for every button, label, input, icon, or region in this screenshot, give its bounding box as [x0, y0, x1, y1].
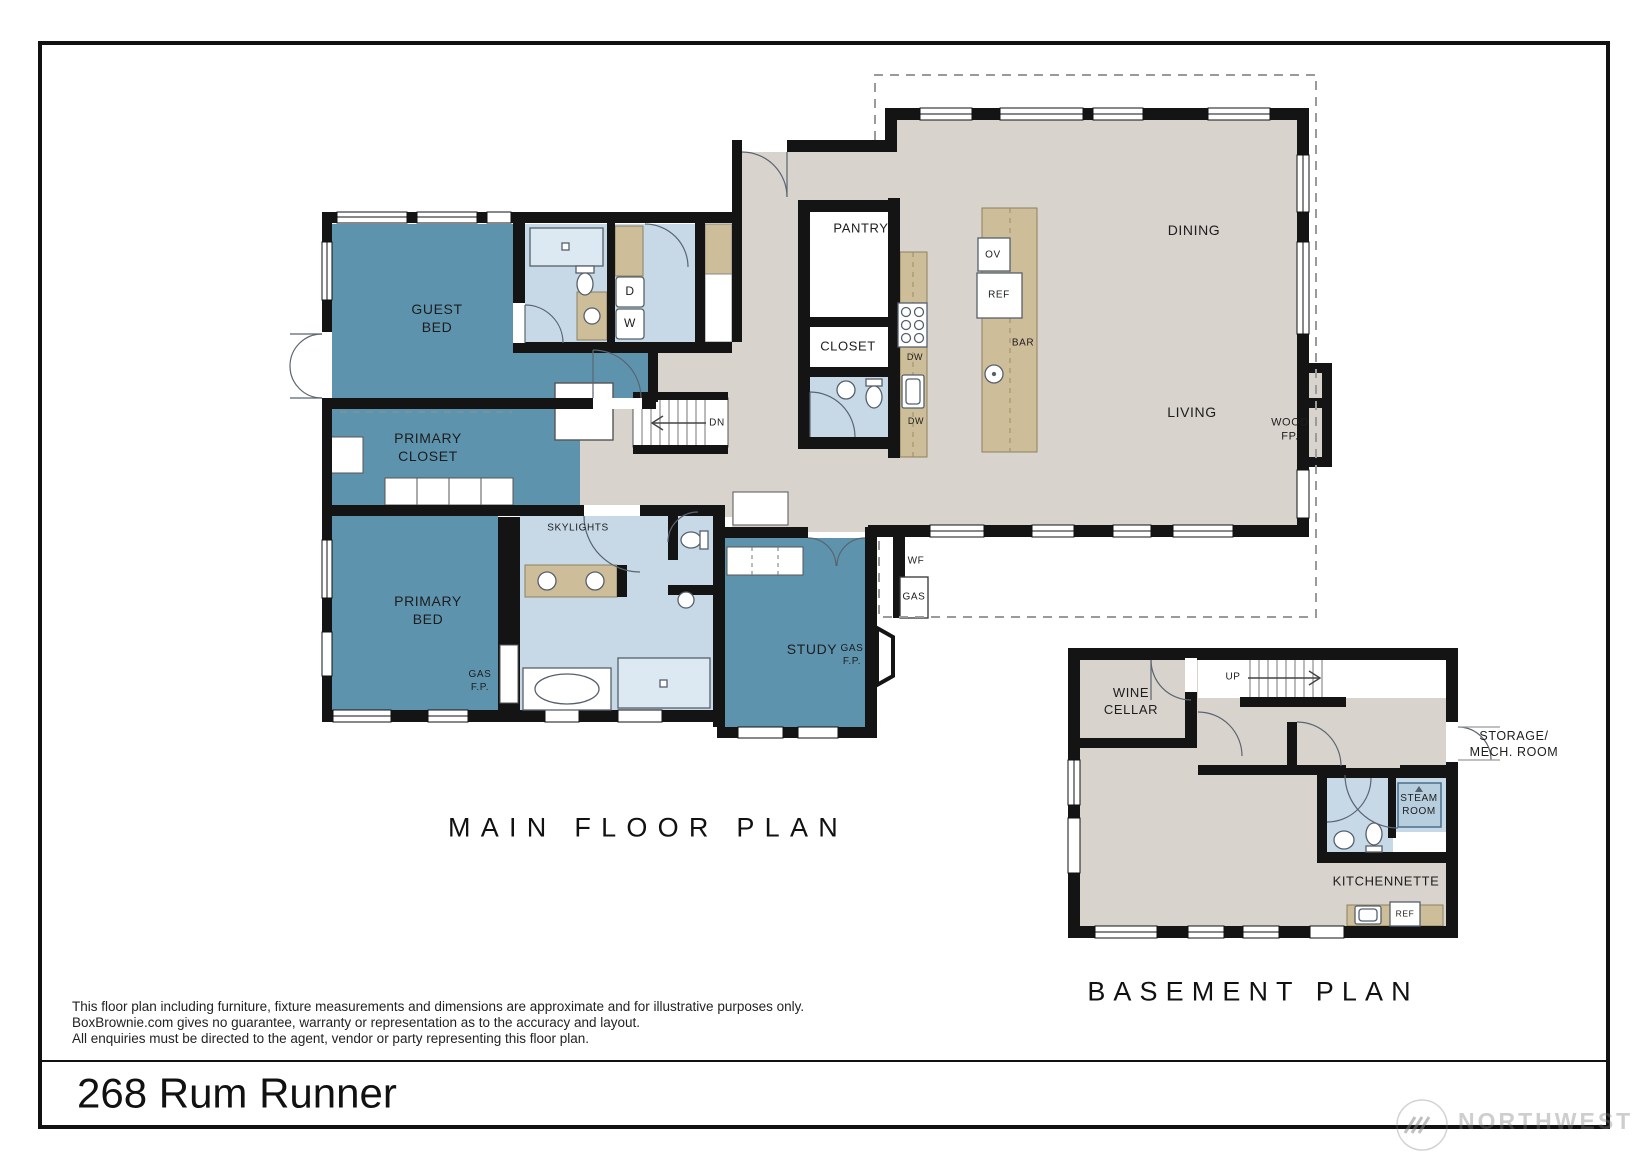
floor-plan-graphic [0, 0, 1647, 1164]
gas-fireplace-study-icon [877, 628, 893, 685]
gas-meter-box [900, 577, 928, 618]
gas-fireplace-primary-icon [500, 645, 518, 703]
floor-plan-document: GUEST BED PRIMARY CLOSET PRIMARY BED STU… [0, 0, 1647, 1164]
